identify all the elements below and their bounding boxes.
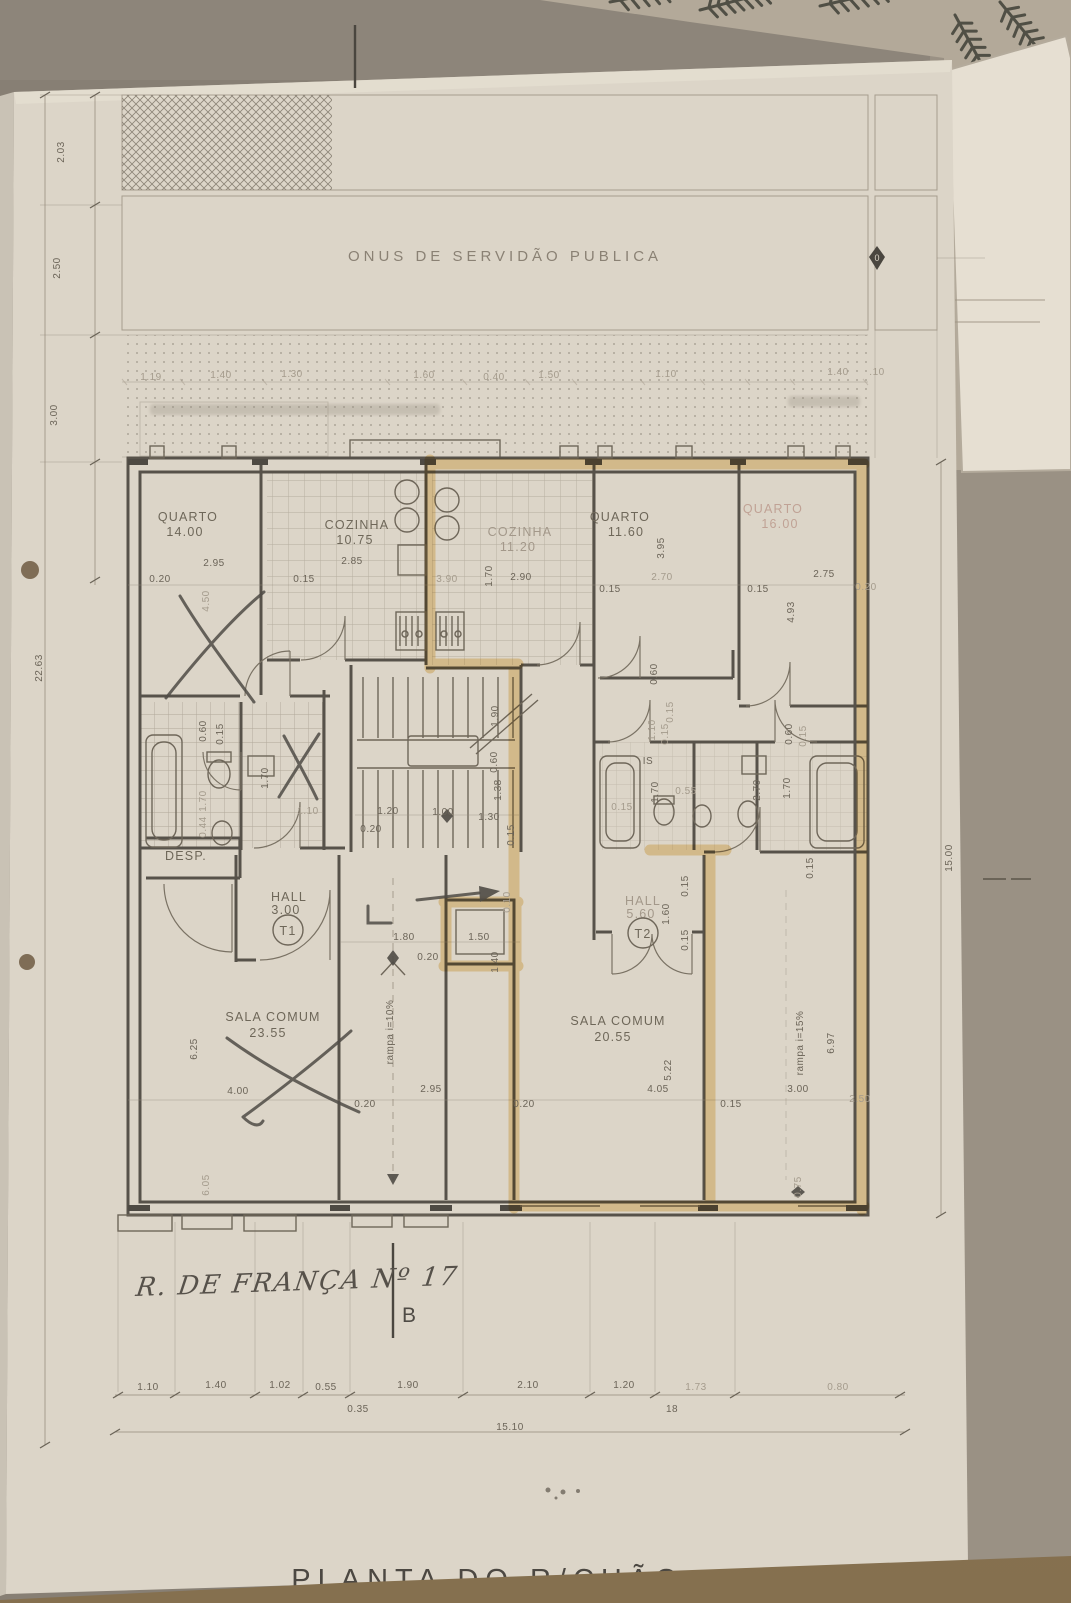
dim-label: IS [643,756,653,767]
room-cozinha2-name: COZINHA [488,525,553,539]
photo-of-floor-plan: ONUS DE SERVIDÃO PUBLICA 0 [0,0,1071,1603]
dim-label: 1.70 [260,767,271,788]
dim-label: 3.90 [436,574,457,585]
hole-punches [19,561,39,970]
dim-label: 1.19 [140,372,161,383]
room-quarto1160-area: 11.60 [608,525,644,539]
dim-label: 1.10 [655,369,676,380]
room-sala2-area: 20.55 [594,1030,631,1044]
dim-label: 1.30 [281,369,302,380]
dim-label: 15.10 [496,1422,524,1433]
dim-label: 1.40 [210,370,231,381]
dim-label: 0.15 [680,929,691,950]
dim-label: 0.20 [354,1099,375,1110]
dim-label: 1.50 [538,370,559,381]
dim-label: 4.00 [227,1086,248,1097]
ramp-right-label: rampa i=15% [795,1011,806,1076]
room-quarto14-area: 14.00 [166,525,203,539]
dim-label: 15.00 [944,844,955,872]
dim-label: 0.35 [347,1404,368,1415]
dim-label: 0.20 [417,952,438,963]
easement-marker-zero: 0 [874,253,879,263]
dim-label: 0.15 [611,802,632,813]
stipple-band [122,330,937,458]
dim-label: 18 [666,1404,678,1415]
dim-label: 0.44 [198,816,209,837]
section-letter: B [402,1304,416,1327]
dim-label: .10 [869,367,884,378]
faint-stamp-smudge [150,404,440,415]
easement-grid-band: ONUS DE SERVIDÃO PUBLICA 0 [122,196,985,330]
dim-label: 5.22 [663,1059,674,1080]
room-quarto1160-name: QUARTO [590,510,650,524]
dim-label: 2.85 [341,556,362,567]
dim-label: 0.15 [215,723,226,744]
room-cozinha1-name: COZINHA [325,518,390,532]
ink-dots [546,1488,581,1500]
room-quarto14-name: QUARTO [158,510,218,524]
dim-label: 0.20 [149,574,170,585]
dim-label: 2.75 [813,569,834,580]
dim-label: 2.10 [517,1380,538,1391]
svg-text:R. DE FRANÇA Nº 17: R. DE FRANÇA Nº 17 [133,1262,460,1303]
dim-label: 1.38 [493,779,504,800]
dim-label: 1.70 [484,565,495,586]
dim-label: 1.90 [397,1380,418,1391]
room-sala1-name: SALA COMUM [225,1010,320,1024]
dim-label: 1.02 [269,1380,290,1391]
dim-label: 0.60 [198,720,209,741]
dim-label: 0.40 [483,372,504,383]
room-hall-t2-area: 5.60 [626,907,655,921]
dim-label: 0.60 [489,751,500,772]
dim-label: 0.15 [680,875,691,896]
dim-label: 0.15 [747,584,768,595]
dim-label: 0.60 [649,663,660,684]
dim-label: 2.90 [510,572,531,583]
dim-label: 2.95 [420,1084,441,1095]
dim-label: 1.90 [490,705,501,726]
dim-label: 2.50 [849,1094,870,1105]
dim-label: 3.00 [787,1084,808,1095]
dim-label: 1.40 [827,367,848,378]
dim-label: 6.05 [201,1174,212,1195]
room-cozinha1-area: 10.75 [336,533,373,547]
dim-label: 1.20 [377,806,398,817]
dim-label: 0.15 [506,824,517,845]
dim-label: 2.50 [52,257,63,278]
room-quarto16-name: QUARTO [743,502,803,516]
dim-label: 0.60 [784,723,795,744]
handwritten-street-note: R. DE FRANÇA Nº 17 [133,1262,460,1303]
ramp-left-label: rampa i=10% [385,1000,396,1065]
dim-label: 0.15 [720,1099,741,1110]
room-sala2-name: SALA COMUM [570,1014,665,1028]
dim-label: 22.63 [34,654,45,682]
room-hall-t2-name: HALL [625,894,661,908]
floor-plan-drawing: ONUS DE SERVIDÃO PUBLICA 0 [0,0,1071,1603]
dim-label: 2.70 [651,572,672,583]
dim-label: 1.10 [137,1382,158,1393]
faint-stamp-smudge [788,396,860,407]
dim-label: 1.10 [297,806,318,817]
dim-label: 3.00 [49,404,60,425]
dim-label: 0.20 [360,824,381,835]
dim-label: 0.55 [315,1382,336,1393]
room-cozinha2-area: 11.20 [500,540,536,554]
dim-label: 1.70 [198,790,209,811]
dim-label: 1.70 [650,781,661,802]
dim-label: 4.50 [201,590,212,611]
dim-label: 0.20 [855,582,876,593]
dim-label: 0.15 [293,574,314,585]
top-hatch-band [122,95,937,190]
dim-label: 1.50 [468,932,489,943]
unit-t1-label: T1 [280,924,297,938]
dim-label: 0.15 [798,725,809,746]
dim-label: 2.95 [203,558,224,569]
dim-label: 0.15 [599,584,620,595]
dim-label: 6.97 [826,1032,837,1053]
dim-label: 0.15 [660,723,671,744]
room-hall-t1-name: HALL [271,890,307,904]
room-quarto16-area: 16.00 [761,517,798,531]
dim-label: 0.75 [793,1176,804,1197]
dim-label: 6.25 [189,1038,200,1059]
dim-label: 1.40 [490,951,501,972]
dim-label: 1.60 [661,903,672,924]
dim-label: 0.80 [827,1382,848,1393]
dim-label: 1.60 [413,370,434,381]
dim-label: 1.73 [685,1382,706,1393]
dim-label: 1.80 [393,932,414,943]
dim-label: 1.70 [782,777,793,798]
dim-label: 2.03 [56,141,67,162]
easement-label: ONUS DE SERVIDÃO PUBLICA [348,248,662,265]
dim-label: 1.30 [478,812,499,823]
dim-label: 0.15 [665,701,676,722]
unit-t2-label: T2 [635,927,652,941]
dim-label: 0.15 [805,857,816,878]
dim-label: 3.95 [656,537,667,558]
dim-label: 4.93 [786,601,797,622]
dim-label: 1.10 [647,719,658,740]
dim-label: 4.05 [647,1084,668,1095]
dim-label: 1.40 [205,1380,226,1391]
room-sala1-area: 23.55 [249,1026,286,1040]
dim-label: 1.20 [613,1380,634,1391]
dim-label: 1.00 [432,807,453,818]
dim-label: 0.20 [513,1099,534,1110]
dim-label: 0.10 [502,891,513,912]
dim-label: 0.55 [675,786,696,797]
dim-label: 2.70 [752,779,763,800]
room-desp-name: DESP. [165,849,207,863]
